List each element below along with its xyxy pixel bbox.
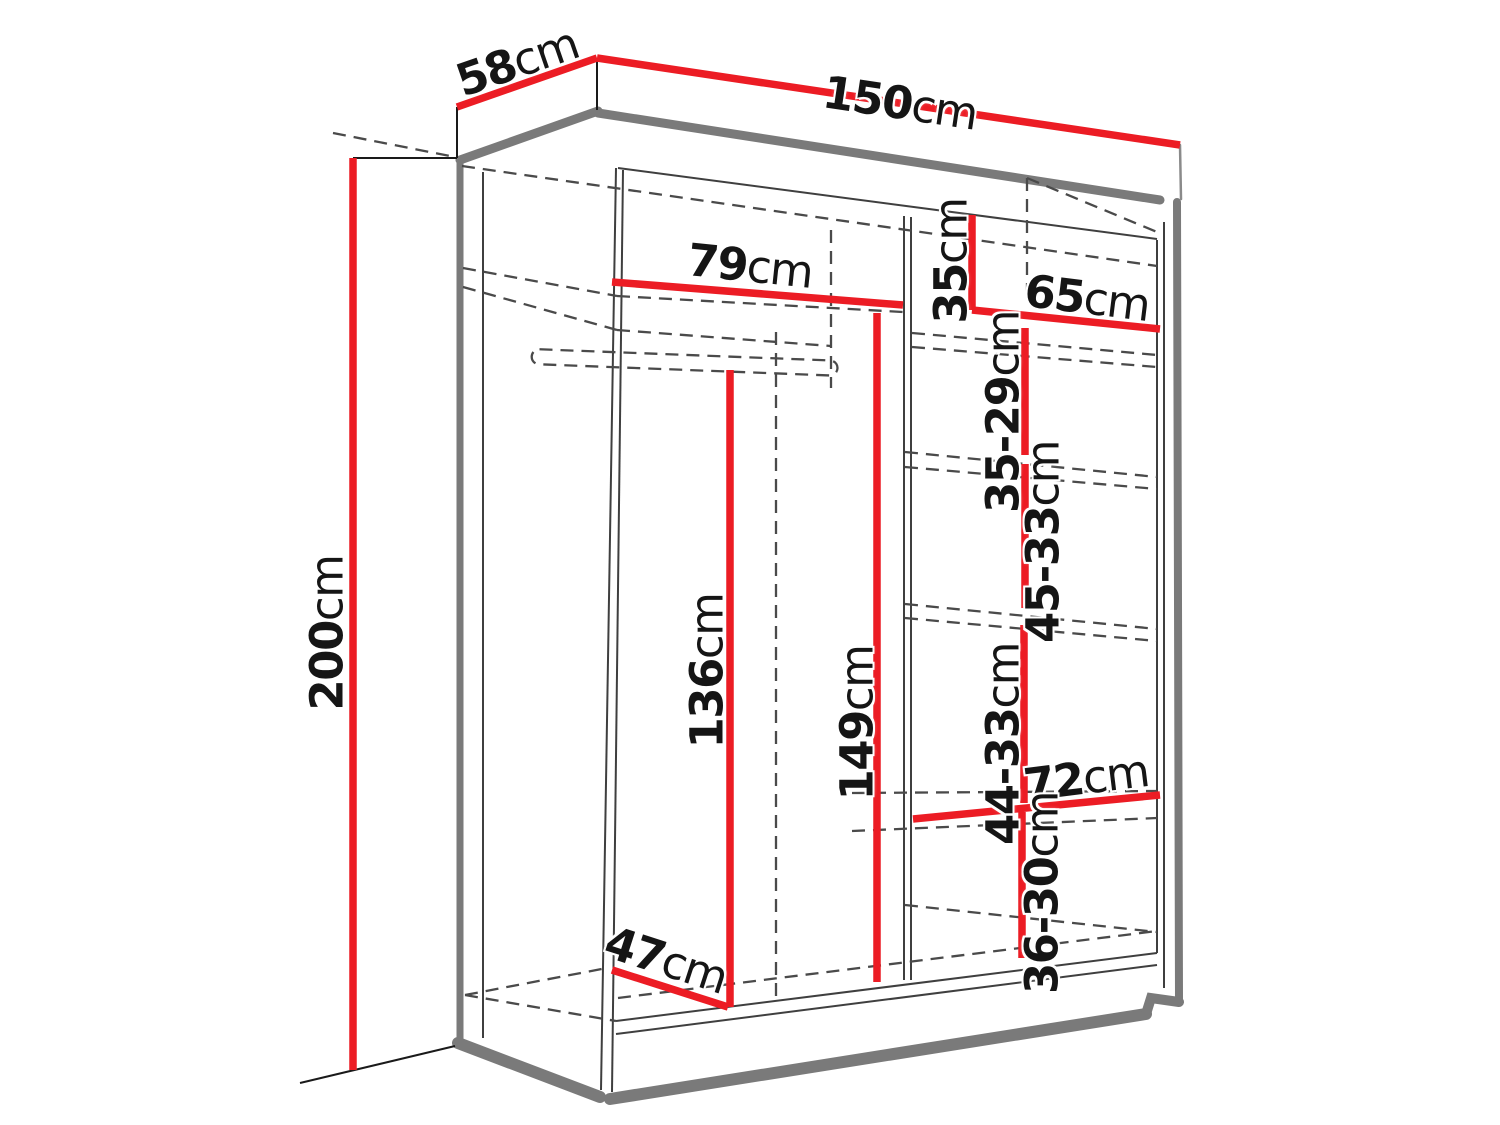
hidden-shelf2-front [905,452,1157,477]
hidden-shelf2-back [905,467,1157,489]
hidden-shelf1-back [912,347,1157,367]
dimension-line-bottom-width-72 [913,795,1160,819]
hidden-shelf4-back [852,818,1157,831]
extension-lines [300,58,597,1083]
hidden-left-shelf-back [617,330,831,346]
dimension-line-right-width-65 [972,310,1160,329]
right-outer-edge [1177,202,1179,1001]
wardrobe-dimension-diagram: 58cm 150cm 200cm 79cm 35cm 65cm 35-29cm … [0,0,1500,1125]
bottom-left-foot-edge [458,1043,600,1097]
cabinet-outline [458,111,1181,1099]
hidden-floor-left-a [465,995,616,1021]
hidden-shelf1-front [912,333,1157,355]
interior-edges [483,168,1164,1092]
dimension-line-width-150 [597,58,1180,145]
hidden-floor-left-b [465,968,607,995]
dimension-lines [353,58,1180,1070]
hidden-shelf5-front [905,905,1157,932]
hidden-floor-back-edge [618,931,1157,998]
dimension-line-left-width-79 [612,282,903,305]
hidden-shelf3-front [905,604,1157,629]
hanging-rail [531,349,837,376]
hidden-shelf4-front [852,791,1157,793]
hidden-sidewall-shelf-b [463,287,617,330]
hidden-shelf3-back [905,618,1157,641]
dimension-line-depth-58 [457,58,597,107]
top-slab-left-edge [460,111,598,160]
bottom-front-edge [610,1014,1146,1099]
hidden-sidewall-shelf-a [463,268,617,296]
bottom-right-foot-edge [1146,998,1179,1014]
inner-floor-front-edge [616,953,1157,1021]
hidden-top-left-edge [333,133,455,157]
diagram-canvas [0,0,1500,1125]
top-slab-right-end [1180,145,1181,199]
dimension-line-depth-47 [612,970,728,1007]
height-extension-bottom [300,1046,455,1083]
